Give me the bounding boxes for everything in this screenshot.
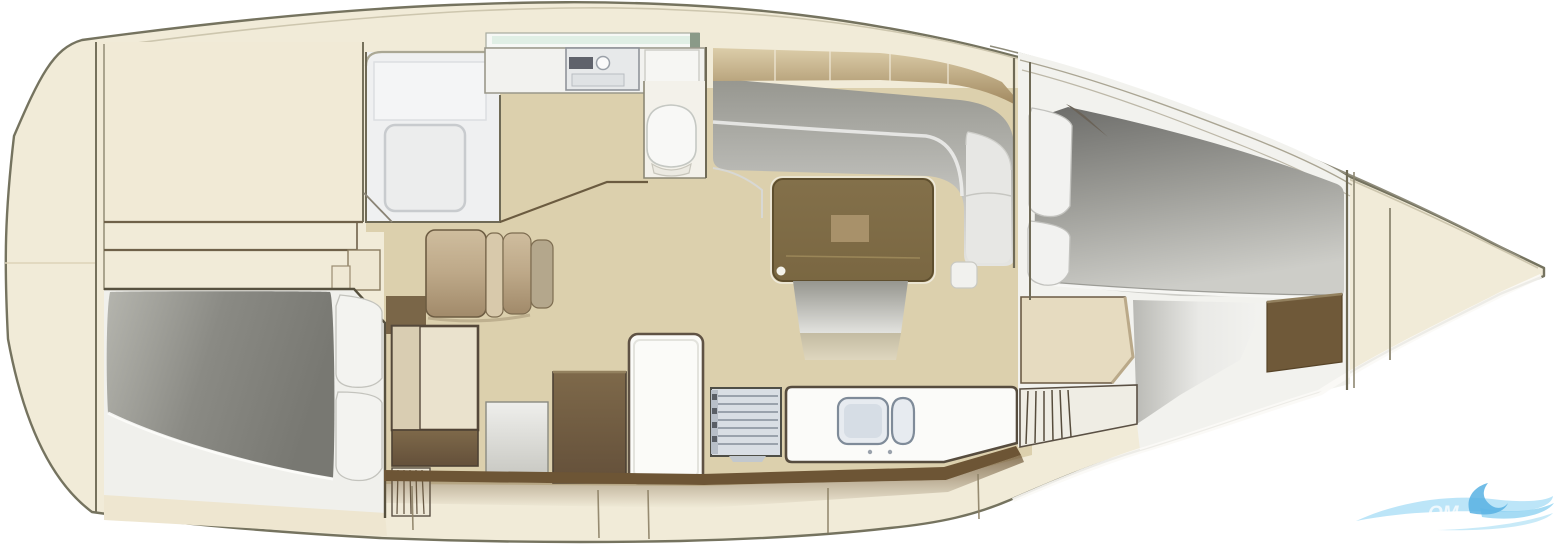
- svg-text:OM: OM: [1428, 503, 1460, 524]
